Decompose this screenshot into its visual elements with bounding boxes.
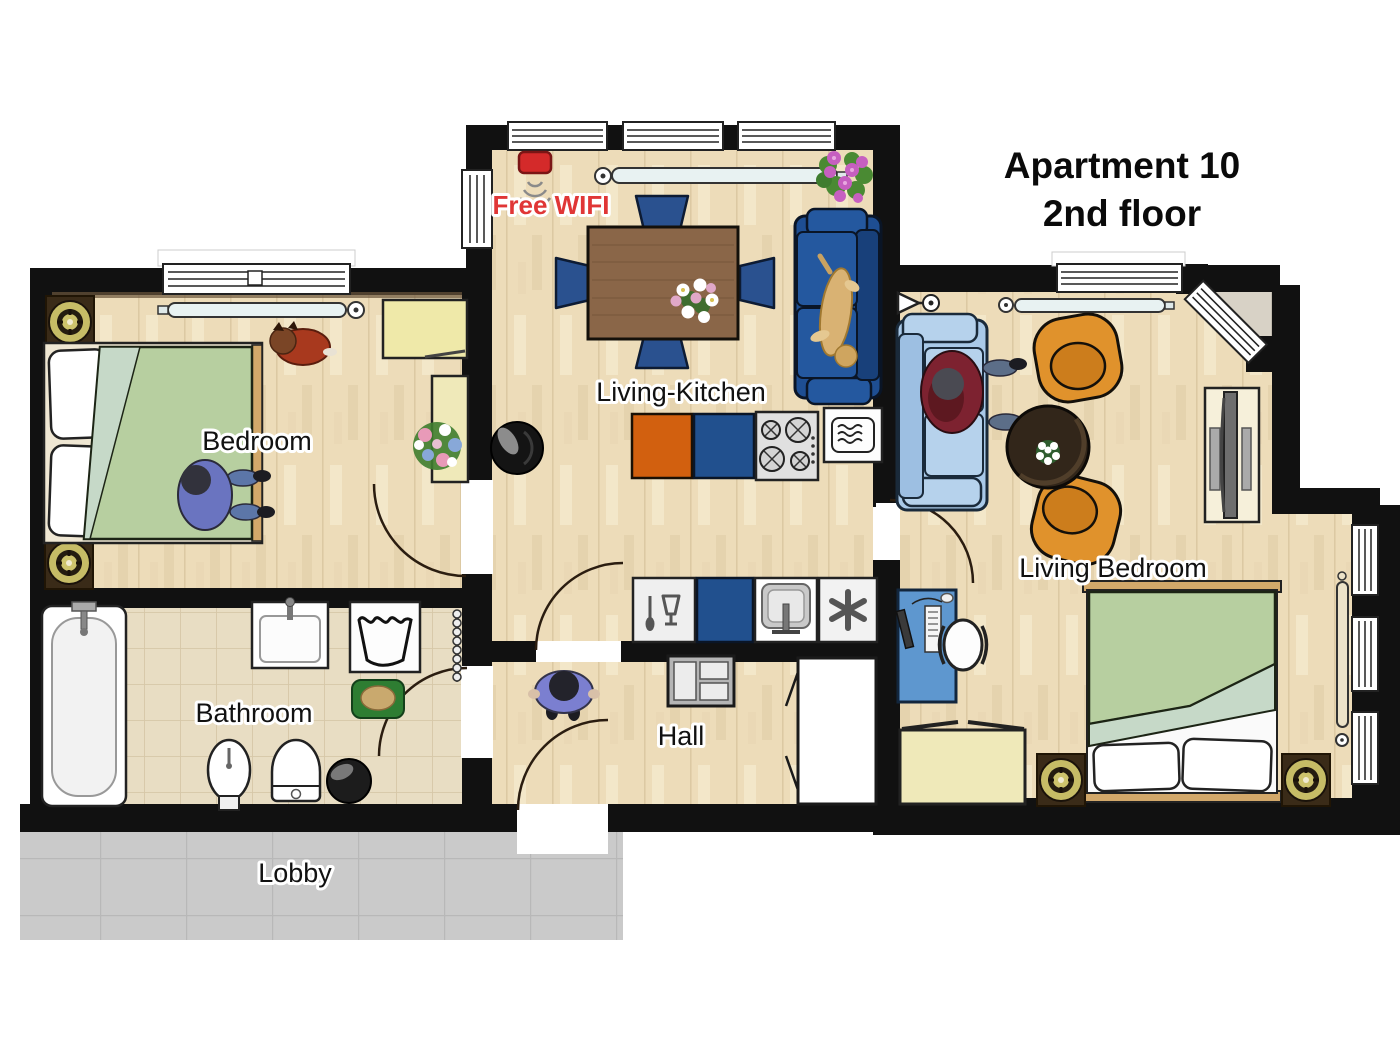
room-label-living-bedroom: Living Bedroom <box>1019 553 1207 583</box>
microwave <box>824 408 882 462</box>
plan-title-line1: Apartment 10 <box>1004 145 1240 186</box>
speaker-icon <box>1282 754 1330 806</box>
coffee-table <box>1007 406 1089 488</box>
dresser <box>900 722 1025 804</box>
speaker-icon <box>46 296 94 348</box>
washing-machine <box>350 602 420 672</box>
freezer <box>819 578 877 642</box>
room-label-bathroom: Bathroom <box>195 698 312 728</box>
speaker-icon <box>1037 754 1085 806</box>
shoe-cabinet <box>668 656 734 706</box>
speaker-icon <box>45 537 93 589</box>
mouse <box>941 594 953 603</box>
sink <box>252 598 328 669</box>
entrance-threshold <box>517 832 608 854</box>
tv <box>383 300 467 358</box>
radiator <box>595 168 847 184</box>
laundry-basket <box>352 680 404 718</box>
dishwasher <box>633 578 695 642</box>
radiator <box>158 302 364 318</box>
windows-lk-top <box>508 122 835 150</box>
room-label-bedroom: Bedroom <box>202 426 312 456</box>
chair <box>556 258 590 308</box>
kitchen-sink <box>755 578 817 642</box>
pillow <box>1182 738 1272 791</box>
window-lb-top <box>1057 264 1182 292</box>
plan-title-line2: 2nd floor <box>1043 193 1201 234</box>
bathtub <box>42 602 126 806</box>
room-label-lobby: Lobby <box>258 858 332 888</box>
chair <box>740 258 774 308</box>
toilet <box>272 740 320 801</box>
pillow <box>1093 743 1180 792</box>
room-label-hall: Hall <box>658 721 705 751</box>
window-bedroom-top <box>163 264 350 294</box>
room-label-living-kitchen: Living-Kitchen <box>596 377 766 407</box>
cabinet-blue <box>697 578 753 642</box>
radiator-vertical <box>1336 572 1348 746</box>
kitchen-counter-bottom <box>633 578 877 642</box>
stove <box>756 412 818 480</box>
windows-lb-right <box>1352 525 1378 784</box>
free-wifi-label: Free WIFI <box>492 190 609 220</box>
sofa <box>795 209 881 404</box>
tv <box>1224 392 1237 518</box>
subwoofer <box>491 422 543 474</box>
wardrobe <box>786 658 876 804</box>
cabinet-orange <box>632 414 692 478</box>
window-lk-left <box>462 170 492 248</box>
floor-plan-svg: Apartment 10 2nd floor Free WIFI Living-… <box>0 0 1400 1050</box>
cabinet-blue <box>694 414 754 478</box>
double-bed <box>1083 581 1281 802</box>
stool <box>327 759 371 803</box>
chair <box>636 336 688 368</box>
floor-plan: Apartment 10 2nd floor Free WIFI Living-… <box>0 0 1400 1050</box>
radiator <box>999 298 1174 312</box>
tv-stand <box>1205 388 1259 522</box>
chair <box>636 196 688 230</box>
